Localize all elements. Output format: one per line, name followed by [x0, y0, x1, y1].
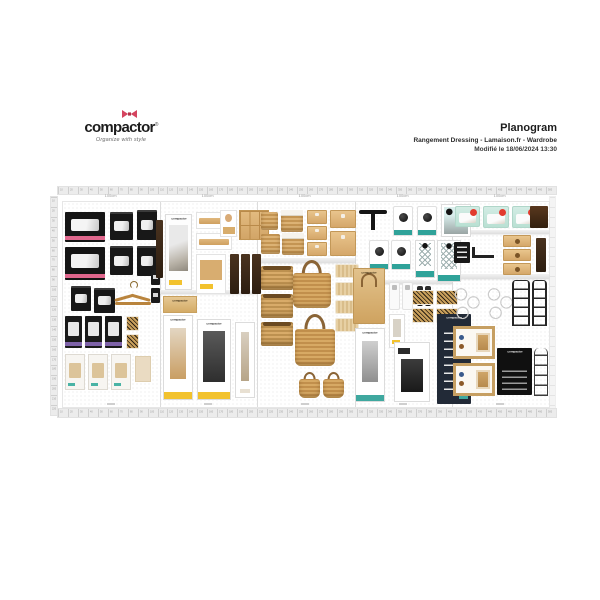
brand-tagline: Organize with style	[76, 137, 166, 143]
ruler-tick	[550, 316, 555, 326]
panel-width-label: 100cm	[169, 194, 247, 200]
product-wicker-basket	[261, 234, 280, 254]
ruler-tick: 400	[446, 409, 456, 417]
product-honeycomb	[487, 284, 514, 324]
ruler-tick: 300	[347, 187, 357, 194]
product-purple-pack	[105, 316, 122, 348]
ruler-tick: 240	[287, 187, 297, 194]
ruler-tick: 440	[486, 409, 496, 417]
ruler-tick: 120	[51, 306, 57, 316]
ruler-tick: 110	[51, 296, 57, 306]
ruler-tick: 420	[466, 409, 476, 417]
product-kraft-box: compactor	[163, 296, 197, 313]
ruler-right	[549, 196, 556, 416]
ruler-tick: 270	[317, 187, 327, 194]
ruler-tick: 180	[227, 409, 237, 417]
product-wood-pic-card	[196, 254, 226, 294]
product-display-box: compactor	[165, 214, 192, 290]
ruler-tick: 40	[88, 187, 98, 194]
ruler-tick: 430	[476, 187, 486, 194]
ruler-tick: 10	[58, 409, 68, 417]
product-leopard-mat	[412, 290, 434, 305]
ruler-tick: 410	[456, 187, 466, 194]
bow-icon	[122, 110, 137, 118]
panel-width-label: 100cm	[461, 194, 539, 200]
ruler-tick: 400	[446, 187, 456, 194]
ruler-tick: 390	[436, 187, 446, 194]
ruler-tick: 30	[78, 409, 88, 417]
ruler-tick: 220	[267, 409, 277, 417]
product-hook-bar	[359, 208, 387, 232]
ruler-tick: 430	[476, 409, 486, 417]
product-black-box-small	[110, 246, 133, 275]
product-frame-box	[453, 363, 495, 396]
product-brand-label: compactor	[170, 318, 185, 322]
ruler-tick: 210	[51, 395, 57, 405]
product-seagrass-basket	[261, 322, 293, 346]
product-tote-bag	[295, 314, 335, 366]
ruler-tick: 50	[51, 237, 57, 247]
ruler-tick: 50	[98, 409, 108, 417]
pegboard: compactorcompactorcompactorcompactorcomp…	[62, 201, 550, 408]
product-brand-label: compactor	[362, 331, 377, 335]
panel-width-label: 100cm	[266, 194, 344, 200]
product-wall-hook	[472, 247, 494, 258]
ruler-tick: 230	[277, 187, 287, 194]
ruler-tick: 330	[377, 187, 387, 194]
ruler-tick: 260	[307, 187, 317, 194]
ruler-tick: 180	[227, 187, 237, 194]
ruler-bottom: 1020304050607080901001101201301401501601…	[57, 408, 557, 418]
product-rack-box: compactor	[197, 319, 231, 400]
ruler-tick: 30	[78, 187, 88, 194]
ruler-tick: 90	[138, 187, 148, 194]
product-brand-label: compactor	[171, 217, 186, 221]
ruler-tick: 70	[51, 256, 57, 266]
doc-subtitle: Rangement Dressing - Lamaison.fr - Wardr…	[413, 137, 557, 144]
ruler-tick: 160	[207, 409, 217, 417]
product-seagrass-basket	[261, 294, 293, 318]
product-leopard-mat	[412, 308, 434, 323]
ruler-tick: 380	[426, 409, 436, 417]
ruler-tick: 210	[257, 187, 267, 194]
ruler-tick: 100	[148, 187, 158, 194]
ruler-tick: 10	[51, 197, 57, 207]
product-coat-box	[235, 322, 255, 398]
product-hanger	[115, 282, 151, 308]
product-dark-strip	[241, 254, 250, 294]
ruler-tick: 460	[506, 409, 516, 417]
product-knob-blister	[393, 206, 413, 236]
ruler-tick: 170	[217, 187, 227, 194]
ruler-tick: 360	[406, 409, 416, 417]
product-wire-rack	[532, 280, 547, 326]
product-black-pack	[454, 242, 470, 263]
ruler-tick: 390	[436, 409, 446, 417]
ruler-tick	[550, 276, 555, 286]
ruler-tick: 90	[138, 409, 148, 417]
ruler-tick: 160	[207, 187, 217, 194]
ruler-tick: 310	[357, 187, 367, 194]
ruler-tick: 150	[197, 409, 207, 417]
ruler-tick: 190	[51, 375, 57, 385]
ruler-tick	[550, 286, 555, 296]
panel-caption-mark	[301, 403, 309, 405]
ruler-tick: 100	[148, 409, 158, 417]
panel-caption-mark	[496, 403, 504, 405]
panel-width-label: 100cm	[72, 194, 150, 200]
ruler-tick: 50	[98, 187, 108, 194]
ruler-tick: 320	[367, 409, 377, 417]
ruler-tick: 30	[51, 217, 57, 227]
product-wicker-basket-rim	[282, 233, 304, 255]
ruler-tick	[550, 306, 555, 316]
ruler-tick: 200	[51, 385, 57, 395]
ruler-tick	[550, 296, 555, 306]
brand-wordmark: compactor®	[76, 118, 166, 135]
ruler-tick: 70	[118, 187, 128, 194]
ruler-tick: 460	[506, 187, 516, 194]
product-knob-blister	[391, 240, 411, 270]
product-wood-drawer-knob	[503, 249, 531, 261]
ruler-tick	[550, 326, 555, 336]
product-wood-drawer-big	[330, 210, 356, 228]
ruler-tick	[550, 227, 555, 237]
ruler-tick	[550, 247, 555, 257]
ruler-tick: 130	[177, 187, 187, 194]
product-knob-blister	[417, 206, 437, 236]
panel-width-label: 100cm	[363, 194, 441, 200]
product-tan-card	[135, 356, 151, 382]
ruler-tick: 330	[377, 409, 387, 417]
product-light-pack	[88, 354, 108, 390]
ruler-tick: 440	[486, 187, 496, 194]
product-kraft-bag: compactor	[353, 268, 385, 324]
ruler-tick: 180	[51, 365, 57, 375]
ruler-tick: 240	[287, 409, 297, 417]
product-tube-card	[389, 282, 400, 310]
ruler-tick	[550, 197, 555, 207]
product-brand-label: compactor	[206, 322, 221, 326]
product-wood-drawer-knob	[503, 263, 531, 275]
product-black-card	[151, 288, 160, 303]
panel-caption-mark	[399, 403, 407, 405]
product-coatrack-box: compactor	[355, 328, 385, 402]
ruler-tick: 80	[128, 409, 138, 417]
ruler-tick: 220	[267, 187, 277, 194]
ruler-tick: 40	[51, 227, 57, 237]
ruler-tick	[550, 266, 555, 276]
ruler-tick: 100	[51, 286, 57, 296]
ruler-tick: 420	[466, 187, 476, 194]
ruler-tick: 470	[516, 409, 526, 417]
ruler-tick	[550, 256, 555, 266]
compactor-logo: compactor® Organize with style	[76, 110, 166, 143]
product-tote-bag-small	[323, 372, 344, 398]
product-leopard-card	[126, 334, 139, 349]
ruler-tick	[550, 365, 555, 375]
product-wicker-basket-rim	[281, 210, 303, 232]
ruler-tick: 170	[217, 409, 227, 417]
product-trolley-box	[394, 342, 430, 402]
ruler-tick	[550, 356, 555, 366]
ruler-tick: 490	[536, 187, 546, 194]
ruler-tick	[550, 385, 555, 395]
product-black-box-small	[71, 286, 91, 311]
ruler-tick: 490	[536, 409, 546, 417]
ruler-tick: 480	[526, 187, 536, 194]
product-dark-strip	[156, 220, 163, 278]
ruler-tick: 110	[158, 409, 168, 417]
ruler-tick: 320	[367, 187, 377, 194]
product-light-pack	[111, 354, 131, 390]
product-purple-pack	[65, 316, 82, 348]
product-brand-label: compactor	[361, 271, 376, 275]
ruler-tick: 40	[88, 409, 98, 417]
ruler-tick: 310	[357, 409, 367, 417]
ruler-tick: 60	[51, 247, 57, 257]
ruler-tick: 170	[51, 356, 57, 366]
ruler-tick: 20	[68, 187, 78, 194]
doc-modified-date: Modifié le 18/06/2024 13:30	[413, 146, 557, 153]
ruler-tick: 60	[108, 409, 118, 417]
product-dark-strip	[252, 254, 261, 294]
product-valet-box: compactor	[163, 315, 193, 400]
ruler-tick: 350	[396, 409, 406, 417]
product-dark-strip	[230, 254, 239, 294]
product-mint-pack	[483, 206, 509, 228]
ruler-tick	[550, 395, 555, 405]
product-black-box-small	[110, 212, 133, 240]
product-wood-drawer	[307, 242, 327, 256]
panel-caption-mark	[107, 403, 115, 405]
product-black-big-box: compactor	[497, 348, 532, 395]
ruler-tick: 450	[496, 409, 506, 417]
ruler-tick: 410	[456, 409, 466, 417]
ruler-tick	[550, 336, 555, 346]
ruler-tick: 200	[247, 409, 257, 417]
ruler-tick: 450	[496, 187, 506, 194]
ruler-tick: 230	[277, 409, 287, 417]
ruler-tick: 360	[406, 187, 416, 194]
ruler-tick: 20	[51, 207, 57, 217]
ruler-tick: 270	[317, 409, 327, 417]
product-light-pack	[65, 354, 85, 390]
product-wire-rack	[512, 280, 530, 326]
product-dark-strip	[536, 238, 546, 272]
product-seagrass-basket	[261, 266, 293, 290]
product-brand-label: compactor	[172, 299, 187, 303]
planogram-page: compactor® Organize with style Planogram…	[0, 0, 600, 600]
product-wood-drawer	[307, 226, 327, 240]
document-header: Planogram Rangement Dressing - Lamaison.…	[413, 122, 557, 153]
product-wood-drawer-knob	[503, 235, 531, 247]
ruler-tick	[550, 375, 555, 385]
ruler-tick: 340	[386, 409, 396, 417]
shelf	[453, 274, 549, 279]
ruler-tick: 370	[416, 409, 426, 417]
ruler-tick: 80	[51, 266, 57, 276]
ruler-tick: 350	[396, 187, 406, 194]
ruler-tick: 210	[257, 409, 267, 417]
ruler-tick: 80	[128, 187, 138, 194]
product-black-box-small	[137, 210, 157, 240]
product-black-box-large	[65, 212, 105, 242]
ruler-tick: 500	[546, 187, 556, 194]
panel-caption-mark	[204, 403, 212, 405]
ruler-tick: 250	[297, 409, 307, 417]
ruler-tick: 290	[337, 187, 347, 194]
product-tote-bag-small	[299, 372, 320, 398]
ruler-tick: 190	[237, 409, 247, 417]
product-tote-bag	[293, 260, 331, 308]
ruler-tick	[550, 346, 555, 356]
ruler-tick: 280	[327, 409, 337, 417]
product-black-box-small	[94, 288, 115, 313]
product-frame-box	[453, 326, 495, 359]
ruler-tick: 120	[167, 409, 177, 417]
product-darkwood-card	[530, 206, 548, 228]
product-face-card	[220, 210, 237, 237]
ruler-tick	[550, 207, 555, 217]
panel-width-labels: 100cm100cm100cm100cm100cm	[62, 194, 548, 201]
ruler-tick: 470	[516, 187, 526, 194]
product-brand-label: compactor	[507, 350, 522, 354]
ruler-tick: 140	[51, 326, 57, 336]
ruler-tick: 340	[386, 187, 396, 194]
ruler-tick: 90	[51, 276, 57, 286]
ruler-tick: 150	[197, 187, 207, 194]
product-wood-drawer-big	[330, 231, 356, 256]
ruler-left: 1020304050607080901001101201301401501601…	[50, 196, 58, 416]
ruler-tick: 150	[51, 336, 57, 346]
page-title: Planogram	[413, 122, 557, 134]
ruler-tick: 130	[177, 409, 187, 417]
ruler-tick: 300	[347, 409, 357, 417]
ruler-tick: 140	[187, 187, 197, 194]
ruler-tick: 290	[337, 409, 347, 417]
ruler-tick: 140	[187, 409, 197, 417]
product-arch-wire	[534, 348, 548, 396]
ruler-tick: 110	[158, 187, 168, 194]
product-purple-pack	[85, 316, 102, 348]
ruler-tick: 500	[546, 409, 556, 417]
ruler-tick: 160	[51, 346, 57, 356]
product-leopard-card	[126, 316, 139, 331]
ruler-tick: 480	[526, 409, 536, 417]
ruler-tick: 10	[58, 187, 68, 194]
ruler-tick: 380	[426, 187, 436, 194]
product-teal-rack-card	[415, 240, 435, 278]
ruler-tick: 260	[307, 409, 317, 417]
product-mint-pack	[455, 206, 480, 227]
ruler-tick: 60	[108, 187, 118, 194]
ruler-tick: 190	[237, 187, 247, 194]
ruler-tick: 280	[327, 187, 337, 194]
ruler-tick: 20	[68, 409, 78, 417]
ruler-tick: 250	[297, 187, 307, 194]
product-knob-blister	[369, 240, 389, 270]
ruler-tick: 130	[51, 316, 57, 326]
product-black-box-large	[65, 247, 105, 280]
ruler-tick: 70	[118, 409, 128, 417]
ruler-tick: 120	[167, 187, 177, 194]
ruler-tick: 370	[416, 187, 426, 194]
ruler-tick	[550, 217, 555, 227]
ruler-tick	[550, 237, 555, 247]
product-wood-drawer	[307, 210, 327, 224]
ruler-tick: 200	[247, 187, 257, 194]
product-honeycomb	[454, 284, 481, 324]
product-wicker-basket	[261, 212, 278, 230]
